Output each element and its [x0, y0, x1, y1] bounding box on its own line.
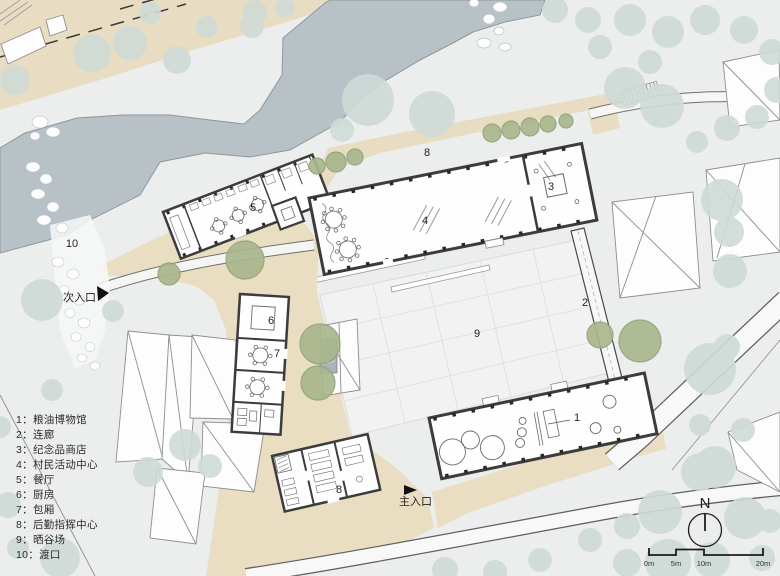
label-logistics: 8 — [336, 484, 342, 496]
roof — [612, 192, 700, 298]
label-path: 8 — [424, 147, 430, 159]
label-corridor: 2 — [582, 297, 588, 309]
label-ferry: 10 — [66, 238, 78, 250]
scale-tick-5m: 5m — [671, 559, 681, 568]
scale-tick-20m: 20m — [756, 559, 771, 568]
label-activity-center: 4 — [422, 215, 428, 227]
site-plan-drawing: 1 2 3 4 5 6 7 8 8 9 10 次入口 主入口 N 0m 5m 1… — [0, 0, 780, 576]
legend-item: 7：包厢 — [16, 503, 98, 518]
legend: 1：粮油博物馆 2：连廊 3：纪念品商店 4：村民活动中心 5：餐厅 6：厨房 … — [16, 413, 98, 563]
label-restaurant: 5 — [250, 202, 256, 214]
legend-item: 8：后勤指挥中心 — [16, 518, 98, 533]
label-museum: 1 — [574, 412, 580, 424]
legend-item: 1：粮油博物馆 — [16, 413, 98, 428]
secondary-entrance-label: 次入口 — [63, 290, 96, 304]
legend-item: 9：晒谷场 — [16, 533, 98, 548]
label-kitchen: 6 — [268, 315, 274, 327]
site-plan-page: 1 2 3 4 5 6 7 8 8 9 10 次入口 主入口 N 0m 5m 1… — [0, 0, 780, 576]
legend-item: 5：餐厅 — [16, 473, 98, 488]
label-drying-field: 9 — [474, 328, 480, 340]
north-label: N — [700, 495, 711, 512]
label-souvenir-shop: 3 — [548, 181, 554, 193]
label-private-rooms: 7 — [274, 348, 280, 360]
roof — [190, 335, 236, 419]
legend-item: 6：厨房 — [16, 488, 98, 503]
legend-item: 4：村民活动中心 — [16, 458, 98, 473]
building-kitchen-rooms — [232, 294, 291, 435]
legend-item: 10：渡口 — [16, 548, 98, 563]
legend-item: 2：连廊 — [16, 428, 98, 443]
scale-tick-10m: 10m — [697, 559, 712, 568]
scale-tick-0m: 0m — [644, 559, 654, 568]
main-entrance-label: 主入口 — [399, 495, 432, 508]
legend-item: 3：纪念品商店 — [16, 443, 98, 458]
